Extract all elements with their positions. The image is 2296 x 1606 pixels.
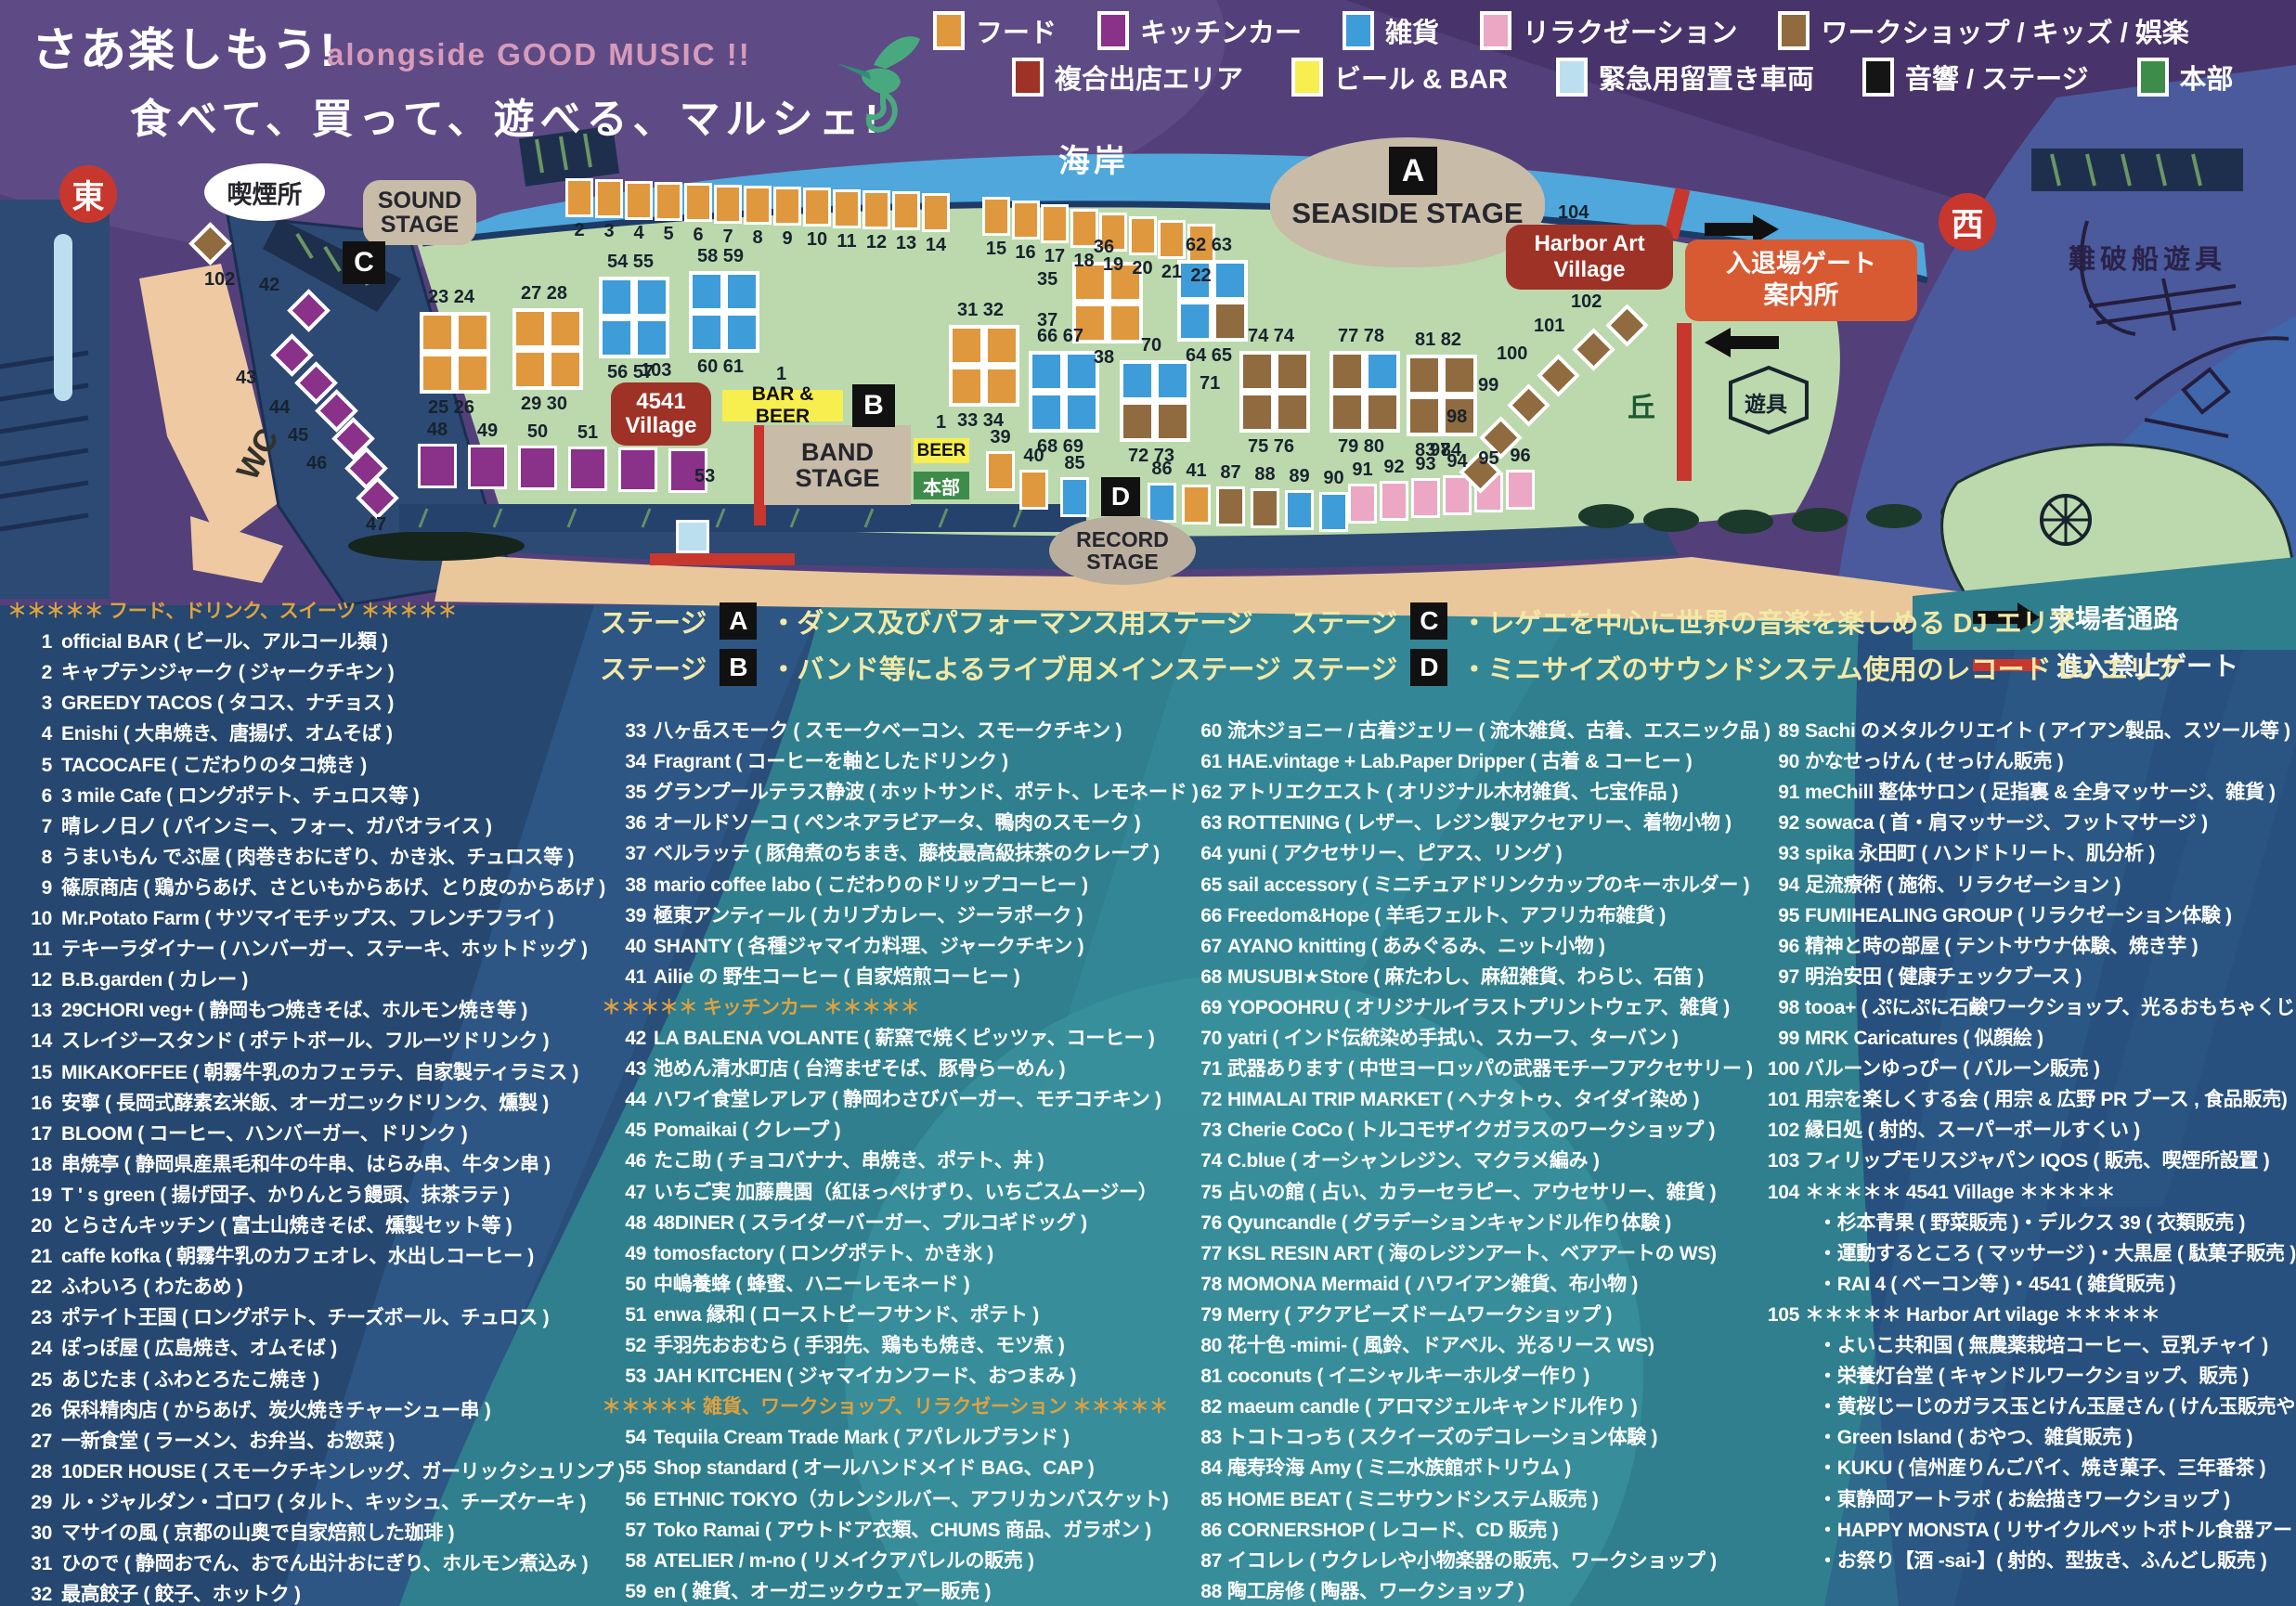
booth-box <box>468 445 507 489</box>
booth-box <box>949 366 984 407</box>
list-item-text: meChill 整体サロン ( 足指裏 & 全身マッサージ、雑貨 ) <box>1805 777 2276 805</box>
legend-item: キッチンカー <box>1097 11 1302 50</box>
booth-box <box>634 317 669 358</box>
list-item-text: 池めん清水町店 ( 台湾まぜそば、豚骨らーめん ) <box>654 1054 1065 1081</box>
booth-number-label: 35 <box>1037 269 1057 291</box>
list-item-number: 87 <box>1175 1550 1222 1573</box>
list-item-number: 12 <box>7 969 52 991</box>
list-item-text: C.blue ( オーシャンレジン、マクラメ編み ) <box>1227 1146 1600 1173</box>
list-item: 78MOMONA Mermaid ( ハワイアン雑貨、布小物 ) <box>1175 1269 1638 1297</box>
stage-note: ステージA・ダンス及びパフォーマンス用ステージ <box>600 602 1253 641</box>
stage-note: ステージB・バンド等によるライブ用メインステージ <box>600 648 1281 687</box>
list-item-number: 75 <box>1175 1182 1222 1204</box>
list-item-text: JAH KITCHEN ( ジャマイカンフード、おつまみ ) <box>654 1361 1076 1389</box>
booth-box <box>634 277 669 317</box>
list-item: 29ル・ジャルダン・ゴロワ ( タルト、キッシュ、チーズケーキ ) <box>7 1487 586 1515</box>
list-item: 65sail accessory ( ミニチュアドリンクカップのキーホルダー ) <box>1175 870 1749 898</box>
booth-box <box>1182 485 1211 525</box>
list-item-text: フィリップモリスジャパン IQOS ( 販売、喫煙所設置 ) <box>1805 1146 2269 1173</box>
list-item-text: mario coffee labo ( こだわりのドリップコーヒー ) <box>654 870 1088 898</box>
list-subitem-text: ・栄養灯台堂 ( キャンドルワークショップ、販売 ) <box>1818 1361 2249 1389</box>
list-item-number: 2 <box>7 662 52 684</box>
stage-note-text: ・レゲエを中心に世界の音楽を楽しめる DJ エリア <box>1460 602 2075 641</box>
list-item-text: 縁日処 ( 射的、スーパーボールすくい ) <box>1805 1115 2140 1143</box>
booth-box <box>689 312 724 353</box>
list-item: 35グランプールテラス静波 ( ホットサンド、ポテト、レモネード ) <box>602 777 1199 805</box>
list-item-text: 庵寿玲海 Amy ( ミニ水族館ボトリウム ) <box>1227 1453 1571 1481</box>
booth-box <box>568 447 607 491</box>
list-item-number: 88 <box>1175 1581 1222 1603</box>
list-item-text: ひので ( 静岡おでん、おでん出汁おにぎり、ホルモン煮込み ) <box>61 1548 588 1576</box>
list-item: 63ROTTENING ( レザー、レジン製アクセアリー、着物小物 ) <box>1175 808 1732 835</box>
booth-box <box>599 277 634 317</box>
list-subitem-text: ・黄桜じーじのガラス玉とけん玉屋さん ( けん玉販売や WS) <box>1818 1392 2296 1419</box>
list-item-text: FUMIHEALING GROUP ( リラクゼーション体験 ) <box>1805 900 2232 928</box>
list-subitem-text: ・HAPPY MONSTA ( リサイクルペットボトル食器アート ) <box>1818 1515 2296 1543</box>
list-item: 63 mile Cafe ( ロングポテト、チュロス等 ) <box>7 781 420 809</box>
list-item-number: 24 <box>7 1338 52 1360</box>
booth-number-label: 1 <box>936 412 946 434</box>
smoking-area: 喫煙所 <box>204 163 325 221</box>
legend-item: ビール & BAR <box>1291 58 1508 97</box>
list-item: 75占いの館 ( 占い、カラーセラピー、アウセサリー、雑貨 ) <box>1175 1177 1716 1205</box>
legend-swatch-icon <box>1012 58 1044 97</box>
booth-number-label: 60 61 <box>683 356 758 378</box>
list-item-text: Mr.Potato Farm ( サツマイモチップス、フレンチフライ ) <box>61 903 554 931</box>
list-item-text: SHANTY ( 各種ジャマイカ料理、ジャークチキン ) <box>654 931 1083 959</box>
list-item-number: 39 <box>602 905 646 927</box>
list-item-text: HOME BEAT ( ミニサウンドシステム販売 ) <box>1227 1484 1599 1512</box>
list-item-number: 46 <box>602 1150 646 1172</box>
list-item: 17BLOOM ( コーヒー、ハンバーガー、ドリンク ) <box>7 1119 467 1146</box>
list-item-number: 104 <box>1749 1182 1799 1204</box>
list-item: 10Mr.Potato Farm ( サツマイモチップス、フレンチフライ ) <box>7 903 554 931</box>
booth-number-label: 29 30 <box>507 394 581 415</box>
list-item: 12B.B.garden ( カレー ) <box>7 965 248 992</box>
legend-item: 緊急用留置き車両 <box>1556 58 1814 97</box>
list-item-number: 66 <box>1175 905 1222 927</box>
booth-number-label: 102 <box>204 269 235 291</box>
booth-number-label: 42 <box>259 275 279 296</box>
list-item-text: 中嶋養蜂 ( 蜂蜜、ハニーレモネード ) <box>654 1269 970 1297</box>
booth-number-label: 96 <box>1500 446 1540 467</box>
list-item: 2キャプテンジャーク ( ジャークチキン ) <box>7 657 394 685</box>
booth-box <box>420 353 455 394</box>
list-item-text: ふわいろ ( わたあめ ) <box>61 1272 243 1300</box>
list-item-number: 11 <box>7 939 52 961</box>
list-item-text: トコトコっち ( スクイーズのデコレーション体験 ) <box>1227 1422 1657 1450</box>
booth-box <box>803 188 831 227</box>
list-item-number: 71 <box>1175 1058 1222 1081</box>
list-item-number: 59 <box>602 1581 646 1603</box>
booth-box <box>982 197 1010 236</box>
list-item: 55Shop standard ( オールハンドメイド BAG、CAP ) <box>602 1453 1094 1481</box>
list-item: 96精神と時の部屋 ( テントサウナ体験、焼き芋 ) <box>1749 931 2198 959</box>
list-item-number: 74 <box>1175 1150 1222 1172</box>
booth-box <box>1407 395 1442 436</box>
list-item-number: 64 <box>1175 843 1222 865</box>
list-item-text: うまいもん でぶ屋 ( 肉巻きおにぎり、かき氷、チュロス等 ) <box>61 842 574 870</box>
festival-map-poster: さあ楽しもう! alongside GOOD MUSIC !! 食べて、買って、… <box>0 0 2296 1606</box>
list-item-text: MUSUBI★Store ( 麻たわし、麻紐雑貨、わらじ、石笛 ) <box>1227 962 1704 990</box>
booth-box <box>986 451 1015 491</box>
list-item: 41Ailie の 野生コーヒー ( 自家焙煎コーヒー ) <box>602 962 1019 990</box>
booth-box <box>1348 484 1377 524</box>
list-item-number: 103 <box>1749 1150 1799 1172</box>
list-item: 52手羽先おおむら ( 手羽先、鶏もも焼き、モツ煮 ) <box>602 1330 1065 1358</box>
booth-number-label: 48 <box>412 420 462 441</box>
list-item: 103フィリップモリスジャパン IQOS ( 販売、喫煙所設置 ) <box>1749 1146 2269 1173</box>
list-item-text: バルーンゆっぴー ( バルーン販売 ) <box>1805 1054 2100 1081</box>
booth-box <box>418 444 457 488</box>
list-item-text: Enishi ( 大串焼き、唐揚げ、オムそば ) <box>61 719 393 746</box>
list-item-text: BLOOM ( コーヒー、ハンバーガー、ドリンク ) <box>61 1119 467 1146</box>
list-item-text: 手羽先おおむら ( 手羽先、鶏もも焼き、モツ煮 ) <box>654 1330 1065 1358</box>
booth-number-label: 47 <box>366 514 386 536</box>
booth-box <box>1275 351 1310 392</box>
legend-row-2: 複合出店エリアビール & BAR緊急用留置き車両音響 / ステージ本部 <box>1012 58 2234 97</box>
list-item: 54Tequila Cream Trade Mark ( アパレルブランド ) <box>602 1422 1070 1450</box>
list-item-number: 98 <box>1749 997 1799 1019</box>
list-item: 60流木ジョニー / 古着ジェリー ( 流木雑貨、古着、エスニック品 ) <box>1175 716 1771 744</box>
booth-diamond <box>1572 328 1615 371</box>
list-item-text: KSL RESIN ART ( 海のレジンアート、ベアアートの WS) <box>1227 1238 1717 1266</box>
list-item-number: 83 <box>1175 1427 1222 1449</box>
list-item: 1official BAR ( ビール、アルコール類 ) <box>7 627 388 654</box>
list-item: 87イコレレ ( ウクレレや小物楽器の販売、ワークショップ ) <box>1175 1546 1717 1574</box>
legend-swatch-icon <box>1343 11 1374 50</box>
stage-note-text: ・ダンス及びパフォーマンス用ステージ <box>770 602 1252 641</box>
stage-chip-d: D <box>1101 477 1140 516</box>
list-item-text: yatri ( インド伝統染め手拭い、スカーフ、ターバン ) <box>1227 1023 1679 1051</box>
booth-box <box>984 366 1019 407</box>
list-subitem-text: ・よいこ共和国 ( 無農薬栽培コーヒー、豆乳チャイ ) <box>1818 1330 2268 1358</box>
list-item-number: 49 <box>602 1243 646 1265</box>
list-item: 5TACOCAFE ( こだわりのタコ焼き ) <box>7 750 367 778</box>
list-item-text: ROTTENING ( レザー、レジン製アクセアリー、着物小物 ) <box>1227 808 1732 835</box>
list-item-text: AYANO knitting ( あみぐるみ、ニット小物 ) <box>1227 931 1605 959</box>
booth-box <box>1120 401 1155 442</box>
booth-number-label: 98 <box>1446 407 1467 428</box>
list-item-number: 1 <box>7 631 52 654</box>
list-item: 47いちご実 加藤農園（紅ほっぺけずり、いちごスムージー） <box>602 1177 1157 1205</box>
booth-box <box>1155 401 1190 442</box>
booth-box <box>1012 201 1040 240</box>
booth-number-label: 75 76 <box>1234 436 1308 458</box>
list-item: 98tooa+ ( ぷにぷに石鹸ワークショップ、光るおもちゃくじ ) <box>1749 992 2296 1020</box>
list-item-number: 32 <box>7 1584 52 1606</box>
list-item-number: 7 <box>7 816 52 838</box>
list-item-text: ベルラッテ ( 豚角煮のちまき、藤枝最高級抹茶のクレープ ) <box>654 838 1160 866</box>
list-subitem-text: ・東静岡アートラボ ( お絵描きワークショップ ) <box>1818 1484 2230 1512</box>
sound-stage: SOUND STAGE <box>363 180 476 245</box>
list-header: ＊＊＊＊＊ フード、ドリンク、スイーツ ＊＊＊＊＊ <box>7 596 457 624</box>
list-item-number: 35 <box>602 782 646 804</box>
list-item-number: 37 <box>602 843 646 865</box>
stage-chip-c: C <box>343 241 385 284</box>
list-item-number: 4 <box>7 723 52 745</box>
legend-item: 本部 <box>2137 58 2234 97</box>
booth-number-label: 81 82 <box>1401 330 1475 351</box>
list-item: 76Qyuncandle ( グラデーションキャンドル作り体験 ) <box>1175 1208 1671 1236</box>
list-item-number: 96 <box>1749 936 1799 958</box>
list-item-number: 93 <box>1749 843 1799 865</box>
list-item-text: ポテイト王国 ( ロングポテト、チーズボール、チュロス ) <box>61 1302 549 1330</box>
list-item-text: Pomaikai ( クレープ ) <box>654 1115 840 1143</box>
booth-number-label: 54 55 <box>593 252 668 273</box>
list-item: 74C.blue ( オーシャンレジン、マクラメ編み ) <box>1175 1146 1600 1173</box>
list-item: 81coconuts ( イニシャルキーホルダー作り ) <box>1175 1361 1589 1389</box>
list-item-text: たこ助 ( チョコバナナ、串焼き、ポテト、丼 ) <box>654 1146 1044 1173</box>
booth-box <box>773 187 801 226</box>
west-marker: 西 <box>1939 193 1996 251</box>
list-item-text: enwa 縁和 ( ローストビーフサンド、ポテト ) <box>654 1300 1039 1328</box>
list-item-text: テキーラダイナー ( ハンバーガー、ステーキ、ホットドッグ ) <box>61 934 588 962</box>
booth-number-label: 71 <box>1200 373 1220 395</box>
list-item: 88陶工房修 ( 陶器、ワークショップ ) <box>1175 1576 1524 1604</box>
booth-box <box>655 182 682 221</box>
list-item-text: いちご実 加藤農園（紅ほっぺけずり、いちごスムージー） <box>654 1177 1157 1205</box>
list-item-text: 花十色 -mimi- ( 風鈴、ドアベル、光るリース WS) <box>1227 1330 1654 1358</box>
list-item: 21caffe kofka ( 朝霧牛乳のカフェオレ、水出しコーヒー ) <box>7 1241 534 1269</box>
list-subitem: ・東静岡アートラボ ( お絵描きワークショップ ) <box>1749 1484 2230 1512</box>
list-item: 37ベルラッテ ( 豚角煮のちまき、藤枝最高級抹茶のクレープ ) <box>602 838 1160 866</box>
list-item: 15MIKAKOFFEE ( 朝霧牛乳のカフェラテ、自家製ティラミス ) <box>7 1057 578 1085</box>
list-item-text: ぽっぽ屋 ( 広島焼き、オムそば ) <box>61 1333 337 1361</box>
booth-number-label: 62 63 <box>1172 235 1246 256</box>
list-item: 53JAH KITCHEN ( ジャマイカンフード、おつまみ ) <box>602 1361 1076 1389</box>
booth-box <box>949 325 984 366</box>
list-item: 105＊＊＊＊＊ Harbor Art vilage ＊＊＊＊＊ <box>1749 1300 2160 1328</box>
list-item: 61HAE.vintage + Lab.Paper Dripper ( 古着 &… <box>1175 746 1693 774</box>
list-item: 84庵寿玲海 Amy ( ミニ水族館ボトリウム ) <box>1175 1453 1571 1481</box>
list-item-text: coconuts ( イニシャルキーホルダー作り ) <box>1227 1361 1589 1389</box>
page-title: さあ楽しもう! <box>32 13 337 80</box>
list-item-number: 76 <box>1175 1212 1222 1235</box>
list-item-text: 流木ジョニー / 古着ジェリー ( 流木雑貨、古着、エスニック品 ) <box>1227 716 1771 744</box>
booth-box <box>1019 470 1048 510</box>
booth-box <box>1275 392 1310 433</box>
list-subitem: ・運動するところ ( マッサージ )・大黒屋 ( 駄菓子販売 ) <box>1749 1238 2296 1266</box>
booth-number-label: 36 <box>1067 237 1141 258</box>
list-item-text: Shop standard ( オールハンドメイド BAG、CAP ) <box>654 1453 1094 1481</box>
booth-number-label: 44 <box>269 397 290 419</box>
list-item-text: ETHNIC TOKYO（カレンシルバー、アフリカンバスケット) <box>654 1484 1168 1512</box>
list-item-text: Sachi のメタルクリエイト ( アイアン製品、スツール等 ) <box>1805 716 2290 744</box>
booth-box <box>1330 351 1365 392</box>
booth-box <box>922 193 950 232</box>
booth-diamond <box>1537 354 1580 397</box>
list-item-text: 足流療術 ( 施術、リラクゼーション ) <box>1805 870 2121 898</box>
list-item-number: 73 <box>1175 1120 1222 1142</box>
stage-note-chip: C <box>1410 602 1447 640</box>
list-item-text: T ' s green ( 揚げ団子、かりんとう饅頭、抹茶ラテ ) <box>61 1180 510 1208</box>
legend-item: 複合出店エリア <box>1012 58 1243 97</box>
list-item-number: 69 <box>1175 997 1222 1019</box>
list-item-number: 38 <box>602 874 646 897</box>
legend-swatch-icon <box>1097 11 1129 50</box>
list-item-number: 68 <box>1175 966 1222 989</box>
booth-box <box>984 325 1019 366</box>
list-item-text: MRK Caricatures ( 似顔絵 ) <box>1805 1023 2043 1051</box>
stage-note-text: ・ミニサイズのサウンドシステム使用のレコード DJ エリア <box>1460 648 2181 687</box>
list-item-number: 65 <box>1175 874 1222 897</box>
legend-item: ワークショップ / キッズ / 娯楽 <box>1778 11 2188 50</box>
booth-box <box>1064 392 1099 433</box>
booth-box <box>565 178 593 217</box>
list-subitem-text: ・RAI 4 ( ベーコン等 )・4541 ( 雑貨販売 ) <box>1818 1269 2175 1297</box>
list-item-text: とらさんキッチン ( 富士山焼きそば、燻製セット等 ) <box>61 1211 512 1238</box>
list-subitem: ・栄養灯台堂 ( キャンドルワークショップ、販売 ) <box>1749 1361 2249 1389</box>
legend-item: フード <box>933 11 1057 50</box>
stage-note-chip: A <box>720 602 757 640</box>
booth-box <box>1041 204 1069 243</box>
page-subtitle: 食べて、買って、遊べる、マルシェ! <box>130 85 884 145</box>
list-header: ＊＊＊＊＊ キッチンカー ＊＊＊＊＊ <box>602 992 919 1020</box>
booth-box <box>1216 486 1245 526</box>
list-item-text: en ( 雑貨、オーガニックウェアー販売 ) <box>654 1576 991 1604</box>
list-item-text: かなせっけん ( せっけん販売 ) <box>1805 746 2063 774</box>
list-item-number: 82 <box>1175 1396 1222 1418</box>
list-item-number: 53 <box>602 1366 646 1388</box>
list-subitem-text: ・Green Island ( おやつ、雑貨販売 ) <box>1818 1422 2133 1450</box>
list-item-text: sail accessory ( ミニチュアドリンクカップのキーホルダー ) <box>1227 870 1749 898</box>
list-subitem: ・お祭り【酒 -sai-】( 射的、型抜き、ふんどし販売 ) <box>1749 1546 2267 1574</box>
booth-box <box>833 189 861 228</box>
booth-number-label: 50 <box>512 421 563 443</box>
stage-note-text: ・バンド等によるライブ用メインステージ <box>770 648 1280 687</box>
list-item-number: 85 <box>1175 1489 1222 1511</box>
booth-number-label: 43 <box>236 368 256 389</box>
list-item-text: 晴レノ日ノ ( パインミー、フォー、ガパオライス ) <box>61 811 492 839</box>
list-item-text: アトリエクエスト ( オリジナル木材雑貨、七宝作品 ) <box>1227 777 1678 805</box>
list-item-text: sowaca ( 首・肩マッサージ、フットマサージ ) <box>1805 808 2208 835</box>
list-item-text: グランプールテラス静波 ( ホットサンド、ポテト、レモネード ) <box>654 777 1199 805</box>
booth-box <box>512 349 548 390</box>
list-item: 83トコトコっち ( スクイーズのデコレーション体験 ) <box>1175 1422 1657 1450</box>
booth-number-label: 40 <box>1012 446 1056 467</box>
booth-box <box>724 312 759 353</box>
headquarters-booth: 本部 <box>914 472 969 499</box>
list-item-text: 精神と時の部屋 ( テントサウナ体験、焼き芋 ) <box>1805 931 2198 959</box>
list-item-text: HAE.vintage + Lab.Paper Dripper ( 古着 & コ… <box>1227 746 1693 774</box>
list-item: 50中嶋養蜂 ( 蜂蜜、ハニーレモネード ) <box>602 1269 970 1297</box>
list-subitem-text: ・運動するところ ( マッサージ )・大黒屋 ( 駄菓子販売 ) <box>1818 1238 2296 1266</box>
list-item-text: オールドソーコ ( ペンネアラビアータ、鴨肉のスモーク ) <box>654 808 1140 835</box>
list-item-text: 48DINER ( スライダーバーガー、プルコギドッグ ) <box>654 1208 1087 1236</box>
list-item-text: tooa+ ( ぷにぷに石鹸ワークショップ、光るおもちゃくじ ) <box>1805 992 2296 1020</box>
list-item: 42LA BALENA VOLANTE ( 薪窯で焼くピッツァ、コーヒー ) <box>602 1023 1155 1051</box>
list-item: 85HOME BEAT ( ミニサウンドシステム販売 ) <box>1175 1484 1599 1512</box>
list-item: 7晴レノ日ノ ( パインミー、フォー、ガパオライス ) <box>7 811 492 839</box>
list-item: 64yuni ( アクセサリー、ピアス、リング ) <box>1175 838 1563 866</box>
stage-note-prefix: ステージ <box>1291 648 1397 687</box>
legend-label: 本部 <box>2180 58 2234 97</box>
list-subitem: ・よいこ共和国 ( 無農薬栽培コーヒー、豆乳チャイ ) <box>1749 1330 2268 1358</box>
booth-box <box>625 181 653 220</box>
booth-box <box>1029 351 1064 392</box>
list-item-text: CORNERSHOP ( レコード、CD 販売 ) <box>1227 1515 1558 1543</box>
list-item-text: ATELIER / m-no ( リメイクアパレルの販売 ) <box>654 1546 1034 1574</box>
legend-item: 雑貨 <box>1343 11 1439 50</box>
list-item-number: 19 <box>7 1185 52 1207</box>
list-item-number: 91 <box>1749 782 1799 804</box>
booth-box <box>689 271 724 312</box>
booth-box <box>1251 488 1279 528</box>
legend-swatch-icon <box>1480 11 1511 50</box>
list-item-text: 占いの館 ( 占い、カラーセラピー、アウセサリー、雑貨 ) <box>1227 1177 1716 1205</box>
list-item-number: 13 <box>7 1000 52 1022</box>
stage-note: ステージC・レゲエを中心に世界の音楽を楽しめる DJ エリア <box>1291 602 2076 641</box>
list-item-text: LA BALENA VOLANTE ( 薪窯で焼くピッツァ、コーヒー ) <box>654 1023 1155 1051</box>
wc-label: WC <box>230 422 287 486</box>
list-item-text: 最高餃子 ( 餃子、ホットク ) <box>61 1579 301 1606</box>
booth-box <box>455 353 490 394</box>
list-item-text: official BAR ( ビール、アルコール類 ) <box>61 627 388 654</box>
band-stage: BAND STAGE <box>764 425 911 505</box>
booth-diamond <box>1605 304 1649 347</box>
booth-box <box>1330 392 1365 433</box>
list-item-text: 保科精肉店 ( からあげ、炭火焼きチャーシュー串 ) <box>61 1395 491 1423</box>
list-item-text: ル・ジャルダン・ゴロワ ( タルト、キッシュ、チーズケーキ ) <box>61 1487 586 1515</box>
list-item-number: 102 <box>1749 1120 1799 1142</box>
list-item-text: B.B.garden ( カレー ) <box>61 965 248 992</box>
list-item-number: 70 <box>1175 1028 1222 1050</box>
booth-number-label: 103 <box>641 360 671 382</box>
legend-row-1: フードキッチンカー雑貨リラクゼーションワークショップ / キッズ / 娯楽 <box>933 11 2189 50</box>
stage-chip-b: B <box>852 384 895 427</box>
booth-box <box>1148 483 1176 523</box>
list-subitem: ・Green Island ( おやつ、雑貨販売 ) <box>1749 1422 2133 1450</box>
entrance-gate-info-badge: 入退場ゲート 案内所 <box>1685 240 1917 321</box>
list-item: 25あじたま ( ふわとろたこ焼き ) <box>7 1365 319 1392</box>
list-subitem: ・HAPPY MONSTA ( リサイクルペットボトル食器アート ) <box>1749 1515 2296 1543</box>
list-item-text: Fragrant ( コーヒーを軸としたドリンク ) <box>654 746 1008 774</box>
list-item-number: 47 <box>602 1182 646 1204</box>
booth-box <box>548 308 583 349</box>
list-subitem: ・黄桜じーじのガラス玉とけん玉屋さん ( けん玉販売や WS) <box>1749 1392 2296 1419</box>
list-item-number: 90 <box>1749 751 1799 773</box>
list-item-text: 10DER HOUSE ( スモークチキンレッグ、ガーリックシュリンプ ) <box>61 1457 625 1484</box>
list-item: 104＊＊＊＊＊ 4541 Village ＊＊＊＊＊ <box>1749 1177 2115 1205</box>
booth-number-label: 51 <box>563 422 613 444</box>
booth-box <box>1239 392 1275 433</box>
list-item: 19T ' s green ( 揚げ団子、かりんとう饅頭、抹茶ラテ ) <box>7 1180 510 1208</box>
list-item-text: 用宗を楽しくする会 ( 用宗 & 広野 PR ブース , 食品販売) <box>1805 1084 2288 1112</box>
list-item-text: ハワイ食堂レアレア ( 静岡わさびバーガー、モチコチキン ) <box>654 1084 1161 1112</box>
booth-number-label: 49 <box>462 421 512 442</box>
booth-box <box>1380 481 1408 521</box>
stage-note-prefix: ステージ <box>600 602 707 641</box>
list-item-number: 40 <box>602 936 646 958</box>
legend-swatch-icon <box>2137 58 2169 97</box>
list-item-text: Ailie の 野生コーヒー ( 自家焙煎コーヒー ) <box>654 962 1019 990</box>
booth-number-label: 100 <box>1497 343 1527 365</box>
booth-number-label: 70 <box>1114 335 1188 356</box>
list-item: 86CORNERSHOP ( レコード、CD 販売 ) <box>1175 1515 1558 1543</box>
hummingbird-icon <box>832 28 925 139</box>
list-item-text: Toko Ramai ( アウトドア衣類、CHUMS 商品、ガラポン ) <box>654 1515 1151 1543</box>
list-item: 95FUMIHEALING GROUP ( リラクゼーション体験 ) <box>1749 900 2232 928</box>
list-item-number: 17 <box>7 1123 52 1146</box>
list-item-number: 79 <box>1175 1304 1222 1327</box>
list-item-number: 55 <box>602 1457 646 1480</box>
legend-label: リラクゼーション <box>1523 11 1737 50</box>
list-item-number: 92 <box>1749 812 1799 835</box>
list-item-text: yuni ( アクセサリー、ピアス、リング ) <box>1227 838 1563 866</box>
list-item-number: 80 <box>1175 1335 1222 1357</box>
list-item: 39極東アンティール ( カリブカレー、ジーラポーク ) <box>602 900 1083 928</box>
